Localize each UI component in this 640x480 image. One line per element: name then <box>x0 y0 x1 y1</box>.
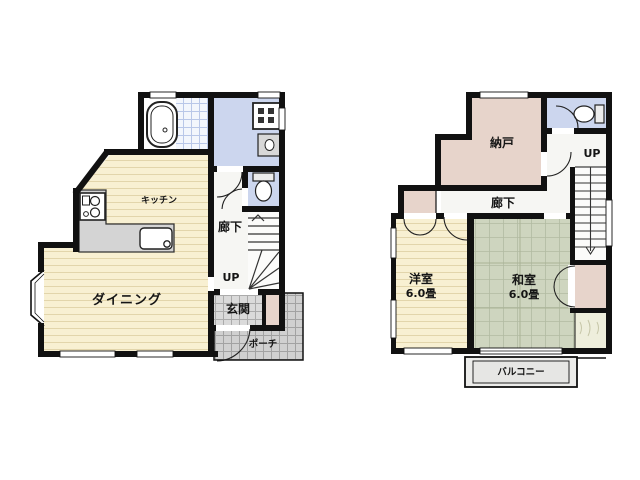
bay-window <box>31 270 44 326</box>
porch-label: ポーチ <box>249 338 278 350</box>
western-room-label: 洋室 <box>409 271 433 286</box>
washing-machine-icon <box>253 103 281 129</box>
bath-tile <box>176 98 208 149</box>
kitchen-label: キッチン <box>141 195 177 206</box>
washbasin-icon <box>258 134 281 156</box>
hallway-label-2f: 廊下 <box>491 195 515 210</box>
window <box>606 200 612 246</box>
hallway-label-1f: 廊下 <box>218 219 242 234</box>
window <box>480 92 528 98</box>
japanese-room-label: 和室 <box>511 272 536 287</box>
japanese-room-size-label: 6.0畳 <box>509 288 540 301</box>
dining-label: ダイニング <box>92 292 162 308</box>
stove-icon <box>80 193 105 220</box>
window <box>60 351 115 357</box>
toilet-icon-2f <box>574 105 604 123</box>
western-room-size-label: 6.0畳 <box>406 287 437 300</box>
storeroom-label: 納戸 <box>490 135 514 150</box>
closet-2f <box>404 191 436 213</box>
bathtub-icon <box>147 102 177 147</box>
window <box>404 348 452 354</box>
storage-shelf <box>575 313 606 348</box>
window <box>279 108 285 130</box>
stairs-up-label-2f: UP <box>584 147 601 160</box>
balcony-label: バルコニー <box>497 366 544 378</box>
floor-plan-canvas: キッチン ダイニング 廊下 UP 玄関 ポーチ <box>0 0 640 480</box>
window <box>137 351 173 357</box>
stairs-up-label-1f: UP <box>223 271 240 284</box>
window <box>150 92 176 98</box>
window <box>391 300 396 338</box>
window <box>258 92 280 98</box>
floor-plan: キッチン ダイニング 廊下 UP 玄関 ポーチ <box>0 0 640 480</box>
entrance-label: 玄関 <box>226 301 250 316</box>
oshiire-closet <box>575 265 606 308</box>
shoe-cabinet <box>266 295 279 325</box>
oshiire-door-strip <box>568 265 575 308</box>
kitchen-sink-icon <box>140 228 172 249</box>
window <box>391 228 396 258</box>
